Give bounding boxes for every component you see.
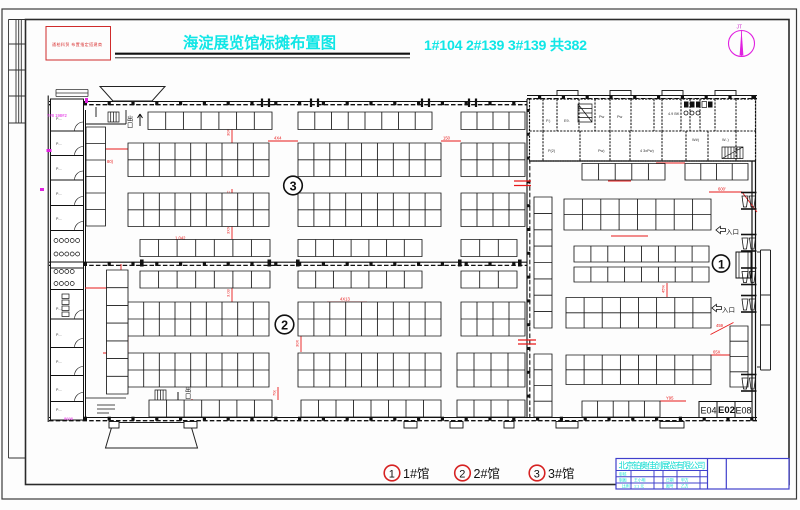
- svg-text:W#): W#): [692, 138, 700, 142]
- svg-text:7#8 198#2: 7#8 198#2: [47, 113, 67, 118]
- svg-text:P-..: P-..: [56, 307, 62, 311]
- svg-text:图号: 图号: [666, 484, 674, 489]
- svg-text:4X13: 4X13: [340, 297, 350, 302]
- svg-text:Y95: Y95: [666, 396, 674, 401]
- svg-text:P-..: P-..: [56, 142, 62, 146]
- svg-text:P-..: P-..: [56, 388, 62, 392]
- svg-text:3XX: 3XX: [226, 226, 231, 234]
- svg-text:1: 1: [718, 257, 725, 271]
- svg-text:W..): W..): [722, 138, 729, 142]
- svg-text:4X4: 4X4: [274, 136, 282, 141]
- svg-text:2#馆: 2#馆: [474, 466, 500, 481]
- svg-text:70(: 70(: [272, 390, 277, 396]
- svg-text:P-..: P-..: [56, 360, 62, 364]
- svg-text:P-..: P-..: [56, 408, 62, 412]
- svg-text:通柏科贸 布置指定搭建商: 通柏科贸 布置指定搭建商: [52, 41, 102, 47]
- svg-text:王小明: 王小明: [634, 478, 646, 483]
- svg-text:P-..: P-..: [56, 167, 62, 171]
- svg-text:口: 口: [127, 123, 133, 130]
- svg-text:30X: 30X: [295, 340, 300, 347]
- svg-text:日期: 日期: [666, 478, 674, 483]
- svg-text:3.03: 3.03: [226, 288, 231, 297]
- svg-text:45%: 45%: [661, 285, 666, 293]
- svg-text:乙方: 乙方: [681, 484, 689, 489]
- svg-text:3#馆: 3#馆: [548, 466, 574, 481]
- svg-text:制图: 制图: [619, 478, 627, 483]
- svg-text:Pw: Pw: [617, 115, 623, 119]
- svg-text:P-..: P-..: [56, 333, 62, 337]
- svg-text:80): 80): [107, 159, 114, 164]
- svg-text:2: 2: [459, 469, 465, 481]
- svg-text:3: 3: [534, 469, 540, 481]
- svg-text:E08: E08: [736, 406, 752, 416]
- svg-text:P-..: P-..: [56, 192, 62, 196]
- svg-text:1#馆: 1#馆: [403, 466, 429, 481]
- svg-text:海淀展览馆标摊布置图: 海淀展览馆标摊布置图: [183, 34, 336, 52]
- svg-text:入口: 入口: [722, 306, 735, 314]
- svg-text:1: 1: [389, 469, 395, 481]
- svg-text:比例: 比例: [622, 484, 630, 489]
- svg-text:入口: 入口: [726, 228, 739, 236]
- svg-text:P(2): P(2): [548, 149, 556, 153]
- svg-text:甲方: 甲方: [681, 478, 689, 483]
- svg-text:459: 459: [716, 323, 724, 328]
- svg-text:3: 3: [290, 180, 297, 194]
- svg-text:4.9 BK: 4.9 BK: [668, 112, 680, 116]
- svg-text:1#104 2#139 3#139 共382: 1#104 2#139 3#139 共382: [424, 37, 587, 54]
- svg-text:150: 150: [443, 136, 451, 141]
- svg-text:E04: E04: [701, 406, 717, 416]
- svg-text:8698: 8698: [64, 416, 74, 421]
- svg-text:审核: 审核: [619, 471, 627, 476]
- svg-text:JT: JT: [737, 25, 743, 31]
- svg-text:P.): P.): [546, 119, 551, 123]
- svg-text:P-..: P-..: [56, 217, 62, 221]
- svg-text:65X: 65X: [713, 350, 721, 355]
- svg-text:600': 600': [718, 187, 726, 192]
- svg-text:北京铂奥佳创展览有限公司: 北京铂奥佳创展览有限公司: [619, 460, 706, 471]
- svg-text:口: 口: [185, 394, 191, 401]
- svg-text:1:1 元: 1:1 元: [634, 485, 644, 489]
- svg-text:Pw): Pw): [598, 149, 605, 153]
- svg-text:4 3xPw): 4 3xPw): [640, 149, 654, 153]
- svg-text:2: 2: [281, 319, 288, 333]
- svg-text:Pw: Pw: [599, 115, 605, 119]
- svg-text:E02: E02: [718, 405, 735, 416]
- svg-text:E9.: E9.: [564, 119, 570, 123]
